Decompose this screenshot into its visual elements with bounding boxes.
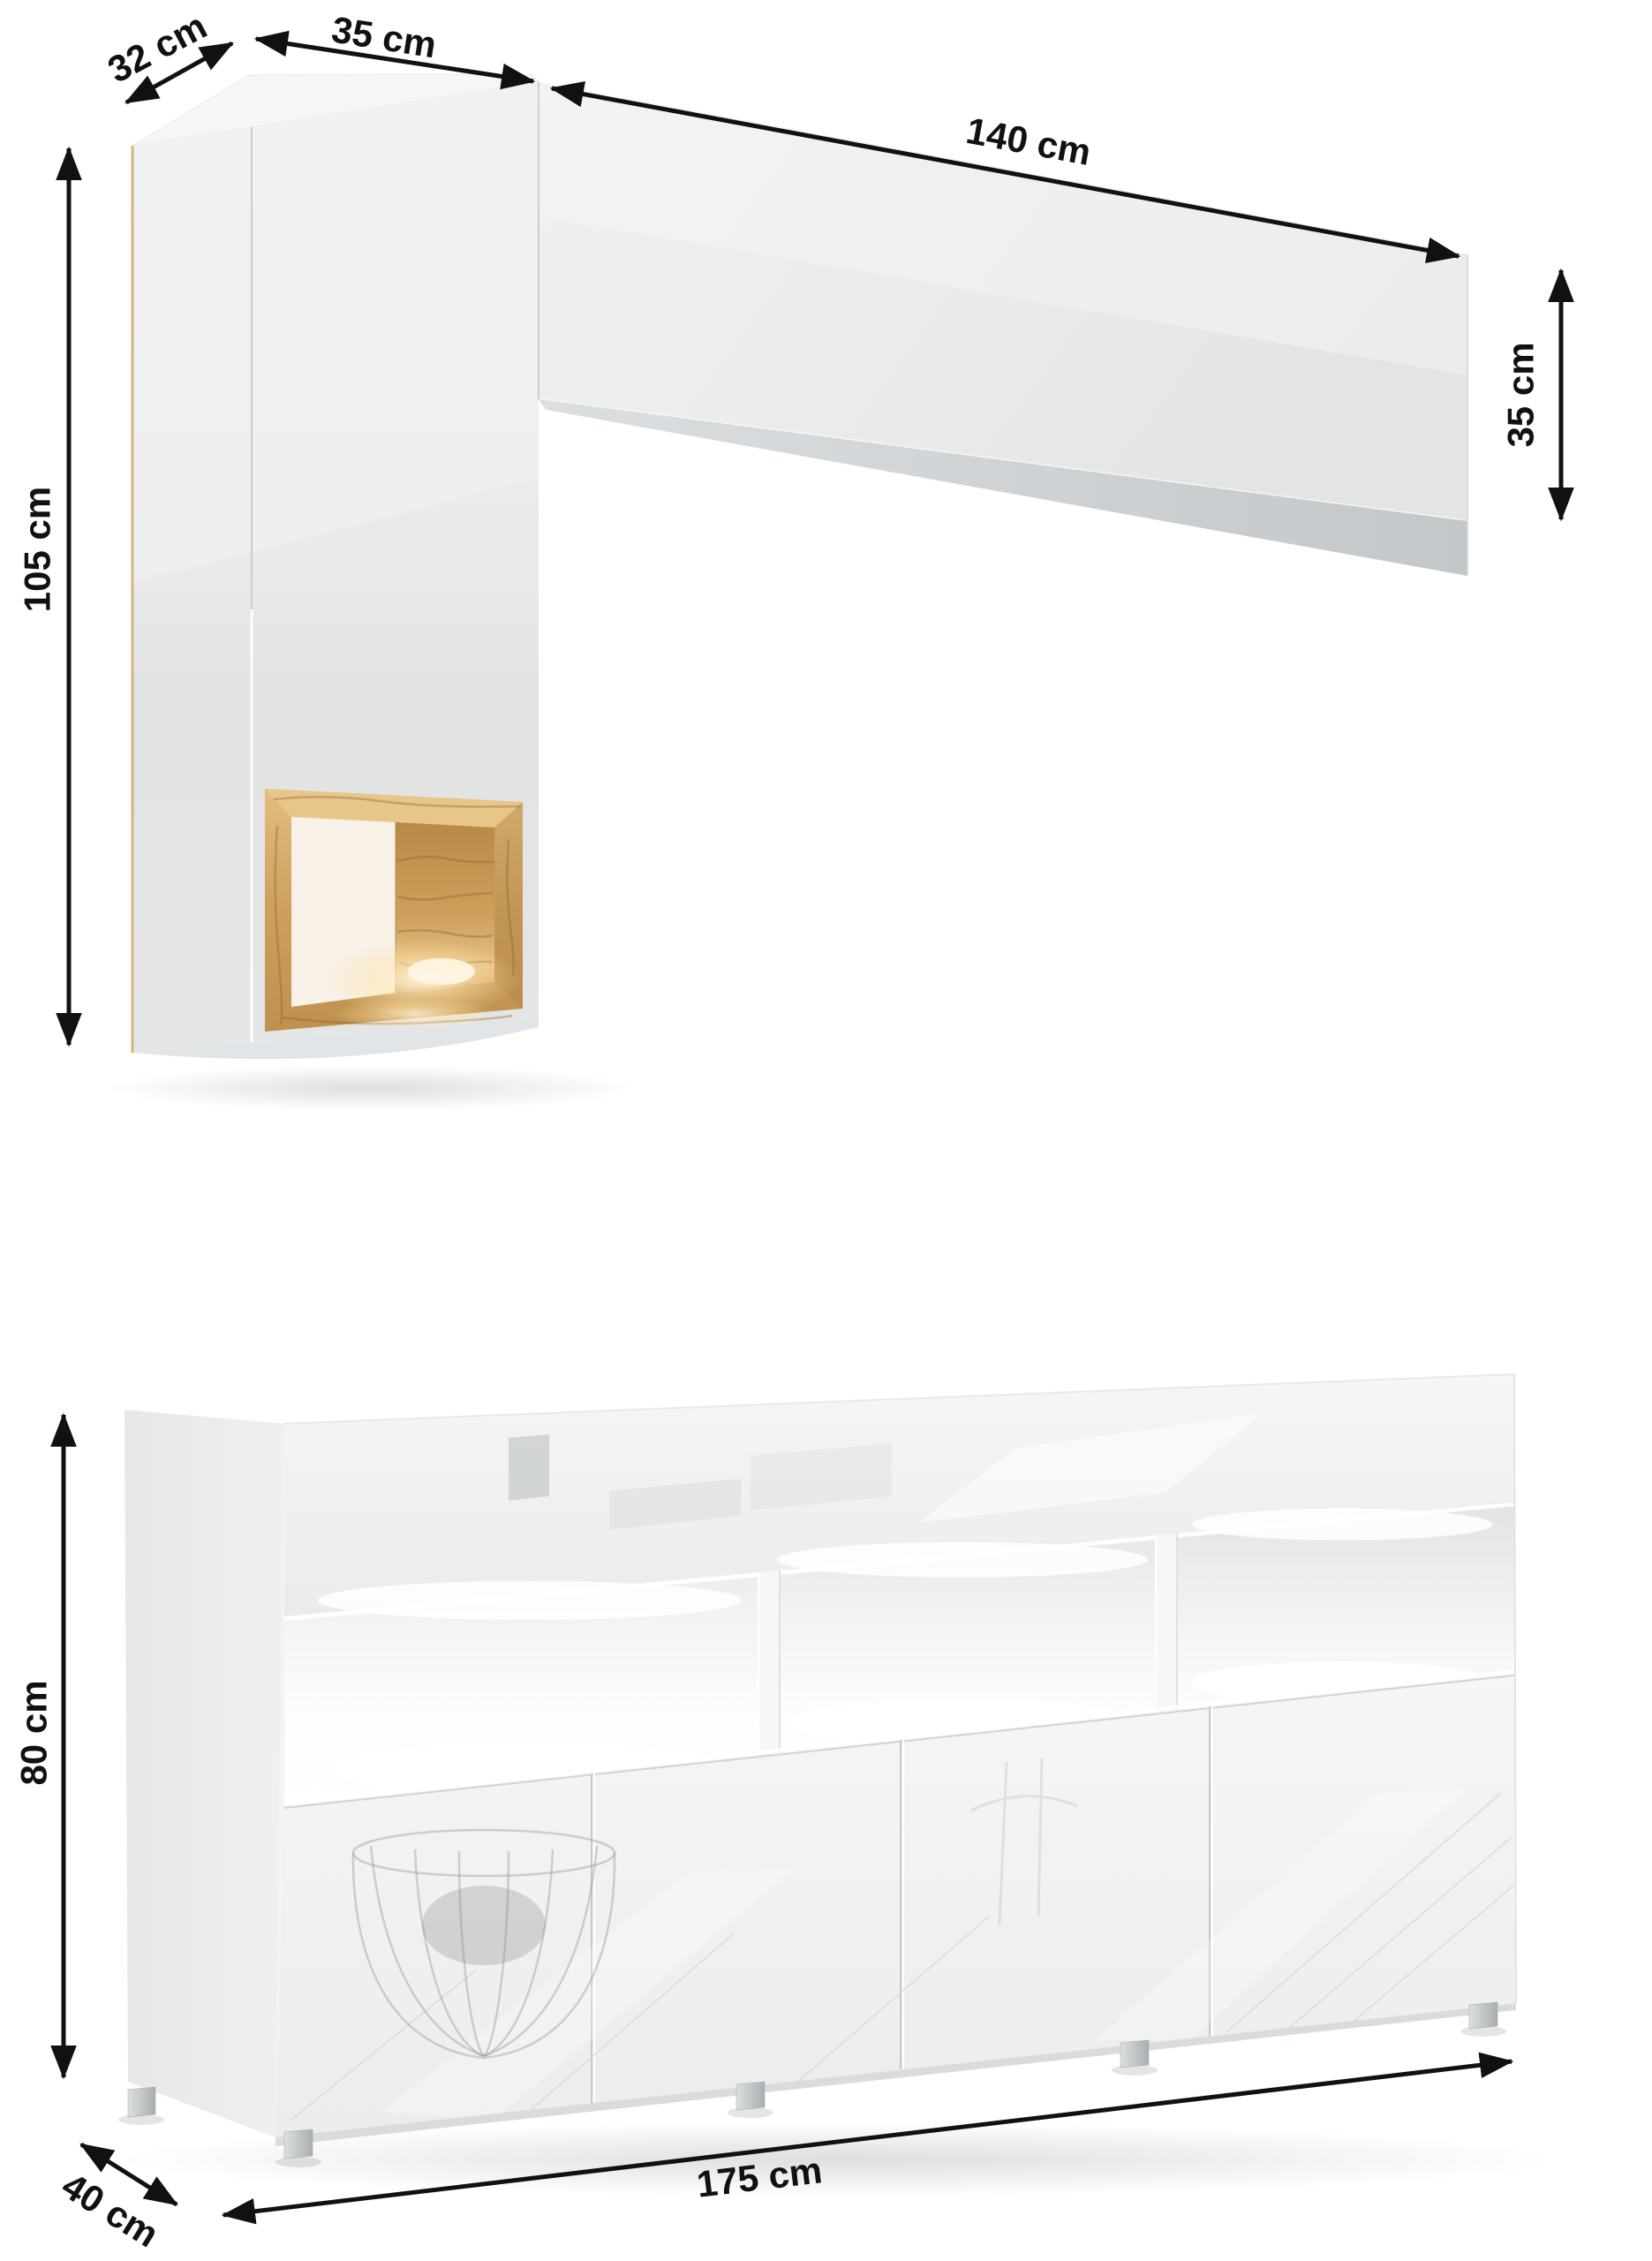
shelf-height-dimension-label: 35 cm xyxy=(1500,342,1542,447)
height-dimension-label: 80 cm xyxy=(13,1680,55,1785)
cabinet-height-dimension-label: 105 cm xyxy=(17,487,58,612)
sideboard-front-details xyxy=(275,1374,1516,2137)
tall-cabinet xyxy=(132,74,539,1059)
niche-led-spot xyxy=(408,958,475,985)
sideboard-figure: 80 cm 175 cm 40 cm xyxy=(13,1374,1564,2255)
depth-dimension-label: 40 cm xyxy=(55,2165,166,2256)
cabinet-width-dimension-label: 35 cm xyxy=(329,8,440,65)
wall-unit-figure: 32 cm 35 cm 140 cm 105 cm 35 cm xyxy=(17,4,1562,1111)
sideboard-side-face xyxy=(124,1410,284,2137)
oak-niche xyxy=(265,789,523,1032)
niche-divider xyxy=(1155,1533,1178,1713)
product-dimension-image: 32 cm 35 cm 140 cm 105 cm 35 cm xyxy=(0,0,1652,2261)
foot xyxy=(128,2087,155,2117)
wall-unit-shadow xyxy=(106,1065,636,1111)
foot xyxy=(736,2082,765,2110)
shelf-width-dimension-label: 140 cm xyxy=(963,110,1095,173)
foot xyxy=(1469,2002,1497,2029)
foot xyxy=(284,2129,313,2159)
niche-divider xyxy=(758,1570,781,1755)
depth-dimension-label: 32 cm xyxy=(101,4,213,90)
foot xyxy=(1120,2040,1149,2068)
figure-svg: 32 cm 35 cm 140 cm 105 cm 35 cm xyxy=(0,0,1652,2261)
niche-frame-glow xyxy=(334,998,496,1030)
